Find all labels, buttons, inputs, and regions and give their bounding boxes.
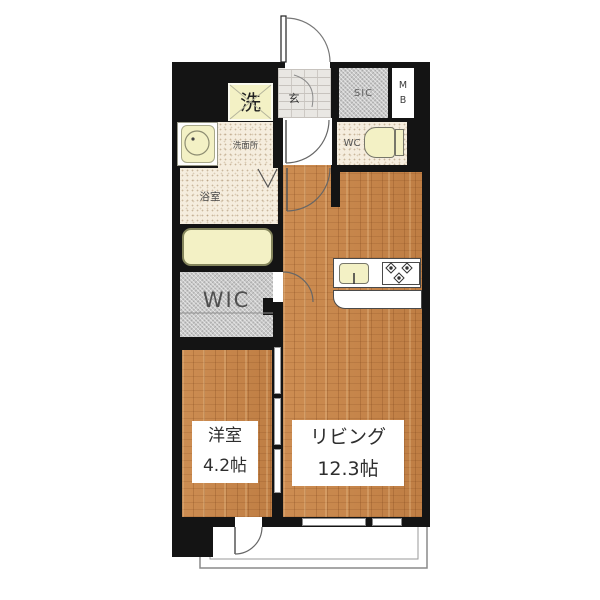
entrance-label: 玄: [284, 88, 304, 108]
western-room-area: 4.2帖: [203, 452, 247, 482]
toilet-icon: [364, 127, 395, 158]
balcony-inner-rail: [210, 527, 418, 559]
living-window: [372, 518, 402, 526]
wic-door-opening: [273, 272, 283, 302]
washstand-counter: [181, 125, 215, 163]
living-room-label-box: リビング 12.3帖: [292, 420, 404, 486]
shoe-closet-label: SIC: [339, 68, 388, 118]
laundry-label: 洗: [228, 83, 273, 121]
western-room-label-box: 洋室 4.2帖: [192, 421, 258, 483]
hall-wall-stub: [331, 165, 340, 207]
wc-label: WC: [337, 122, 367, 165]
sliding-door-panel: [274, 449, 281, 493]
balcony-door-swing-icon: [235, 527, 262, 554]
living-top-wall: [331, 165, 430, 172]
living-room-name: リビング: [310, 421, 386, 453]
entrance-door-leaf-icon: [281, 16, 286, 62]
kitchen-lower-counter: [333, 290, 422, 309]
entrance-door-swing-icon: [286, 18, 330, 62]
western-room-name: 洋室: [208, 422, 242, 452]
hallway: [283, 118, 332, 165]
stove-icon: [382, 262, 420, 285]
living-room-area: 12.3帖: [317, 453, 378, 485]
meter-box-letter-b: B: [400, 93, 407, 108]
balcony-door-opening: [235, 517, 262, 527]
meter-box-label: M B: [392, 68, 414, 118]
corner-wall-block: [172, 517, 213, 557]
living-window: [302, 518, 366, 526]
sliding-door-panel: [274, 347, 281, 394]
balcony-outer-rail: [200, 527, 427, 568]
entrance-door-opening: [285, 62, 330, 69]
sliding-door-panel: [274, 398, 281, 445]
bathtub-icon: [182, 228, 273, 266]
bathroom-label: 浴室: [182, 186, 238, 206]
meter-box-letter-m: M: [399, 78, 407, 93]
washroom-label: 洗面所: [218, 128, 273, 162]
kitchen-sink-icon: [339, 263, 369, 284]
floor-plan: 洗 玄 SIC M B 洗面所 WC 浴室 WIC 洋室 4.2帖 リビング 1…: [0, 0, 600, 600]
toilet-tank-icon: [395, 129, 404, 156]
wic-label: WIC: [180, 278, 273, 322]
